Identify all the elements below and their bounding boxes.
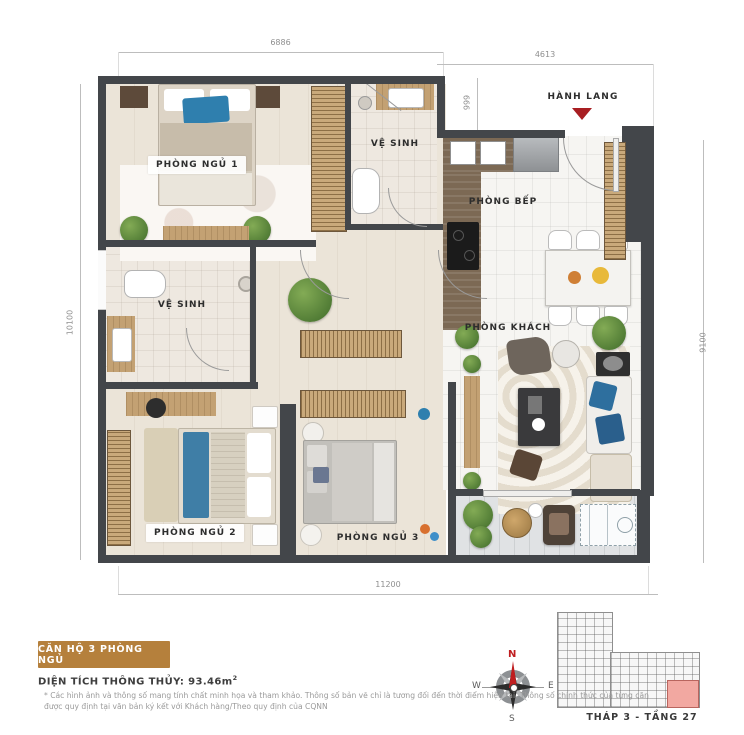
decor xyxy=(300,524,322,546)
bench xyxy=(163,226,249,241)
wall xyxy=(622,126,654,242)
sink-basin xyxy=(112,328,132,362)
mini-plan-caption: THÁP 3 - TẦNG 27 xyxy=(572,712,712,723)
dim-line xyxy=(477,78,478,130)
wall xyxy=(637,490,650,563)
blanket xyxy=(211,432,245,518)
entry-door-leaf xyxy=(613,138,619,192)
compass-south: S xyxy=(509,714,515,724)
ac-unit xyxy=(580,504,636,546)
shower-head-icon xyxy=(358,96,372,110)
tv-console xyxy=(464,376,480,468)
blue-pillow xyxy=(595,413,625,445)
wall xyxy=(250,247,256,387)
room-label-kitchen: PHÒNG BẾP xyxy=(458,197,548,207)
chair xyxy=(548,230,572,250)
plant-icon xyxy=(463,472,481,490)
room-label-bathroom2: VỆ SINH xyxy=(140,300,224,310)
toy xyxy=(418,408,430,420)
plant-icon xyxy=(470,526,492,548)
bed xyxy=(303,440,397,524)
wall xyxy=(345,80,351,230)
compass-north: N xyxy=(508,649,516,660)
wall xyxy=(98,240,316,247)
nightstand xyxy=(252,86,280,108)
desk xyxy=(126,392,216,416)
nightstand xyxy=(120,86,148,108)
dim-line xyxy=(80,84,81,560)
pillow xyxy=(247,433,271,473)
wall xyxy=(455,489,483,496)
dim-label-right: 9100 xyxy=(699,325,708,361)
wardrobe xyxy=(107,430,131,546)
area-label: DIỆN TÍCH THÔNG THỦY: 93.46m2 xyxy=(38,674,238,687)
ac-line xyxy=(589,505,590,545)
nightstand xyxy=(252,406,278,428)
blanket-fold xyxy=(160,171,252,205)
blue-blanket xyxy=(183,432,209,518)
unit-type-badge: CĂN HỘ 3 PHÒNG NGỦ xyxy=(38,641,170,668)
desk-chair xyxy=(146,398,166,418)
room-label-living: PHÒNG KHÁCH xyxy=(462,323,554,333)
wall xyxy=(437,130,565,138)
decor xyxy=(532,418,545,431)
food-plate xyxy=(568,271,581,284)
nightstand xyxy=(252,524,278,546)
ac-line xyxy=(607,505,608,545)
area-text: DIỆN TÍCH THÔNG THỦY: 93.46m xyxy=(38,676,233,687)
mini-plan-highlight-unit xyxy=(667,680,699,708)
plant-icon xyxy=(463,355,481,373)
blue-pillow xyxy=(182,95,230,124)
toilet xyxy=(124,270,166,298)
plant-icon xyxy=(592,316,626,350)
dim-label-left: 10100 xyxy=(66,303,75,343)
food-plate xyxy=(592,267,609,284)
wall xyxy=(98,76,445,84)
sink-counter xyxy=(107,316,135,372)
dim-ext xyxy=(118,52,119,76)
area-superscript: 2 xyxy=(233,674,238,682)
sofa xyxy=(586,376,632,454)
dim-line xyxy=(118,52,443,53)
wall xyxy=(437,76,445,138)
room-label-bedroom2: PHÒNG NGỦ 2 xyxy=(146,524,244,542)
wall xyxy=(448,382,456,555)
wall xyxy=(98,76,106,563)
entry-arrow-icon xyxy=(572,108,592,120)
toy xyxy=(430,532,439,541)
sliding-door xyxy=(483,490,572,497)
dim-label-top-right: 4613 xyxy=(437,50,653,59)
decor xyxy=(528,503,543,518)
wall xyxy=(98,382,258,389)
wall xyxy=(280,404,296,555)
chair-cushion xyxy=(549,513,569,535)
pillow xyxy=(247,477,271,517)
disclaimer-text: * Các hình ảnh và thông số mang tính chấ… xyxy=(44,690,662,713)
kitchen-sink xyxy=(450,141,476,165)
ac-fan xyxy=(617,517,633,533)
room-label-hallway: HÀNH LANG xyxy=(538,92,628,102)
dim-label-bottom: 11200 xyxy=(118,580,658,589)
kitchen-sink xyxy=(480,141,506,165)
dim-label-top-left: 6886 xyxy=(118,38,443,47)
chair xyxy=(576,230,600,250)
side-table xyxy=(552,340,580,368)
speaker-cabinet xyxy=(596,352,630,376)
wall xyxy=(641,240,654,496)
wall xyxy=(345,224,443,230)
bed xyxy=(158,84,256,206)
decor xyxy=(528,396,542,414)
room-label-bedroom1: PHÒNG NGỦ 1 xyxy=(148,156,246,174)
blue-pillow xyxy=(588,380,618,411)
fridge xyxy=(513,136,559,172)
wall xyxy=(570,489,640,496)
room-label-bathroom1: VỆ SINH xyxy=(352,139,438,149)
dim-line xyxy=(437,64,653,65)
wardrobe xyxy=(311,86,347,232)
pillow xyxy=(307,445,327,467)
balcony-chair xyxy=(543,505,575,545)
dim-label-entry: 999 xyxy=(463,88,472,118)
wardrobe xyxy=(300,390,406,418)
blue-pillow xyxy=(313,467,329,483)
armchair xyxy=(506,335,553,376)
room-label-bedroom3: PHÒNG NGỦ 3 xyxy=(328,533,428,543)
compass: N S W E xyxy=(478,652,548,724)
floorplan-page: PHÒNG NGỦ 1 VỆ SINH PHÒNG BẾP xyxy=(0,0,744,735)
window xyxy=(98,250,106,310)
rug xyxy=(144,428,178,522)
dim-ext xyxy=(653,64,654,126)
burner xyxy=(453,230,464,241)
toilet xyxy=(352,168,380,214)
wardrobe xyxy=(300,330,402,358)
blanket xyxy=(332,443,372,521)
bed xyxy=(178,428,276,524)
speaker-cone xyxy=(603,356,623,371)
coffee-table xyxy=(518,388,560,446)
dim-line xyxy=(118,594,658,595)
sheet xyxy=(374,443,394,521)
wall xyxy=(98,555,650,563)
